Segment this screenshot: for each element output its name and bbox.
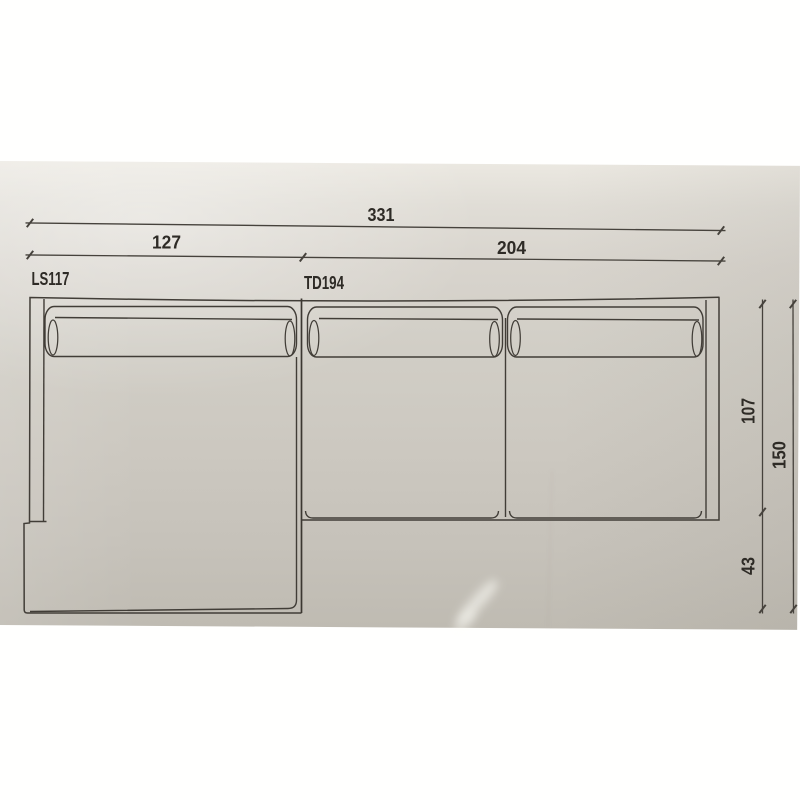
svg-text:43: 43 xyxy=(739,557,759,575)
svg-text:LS117: LS117 xyxy=(32,269,70,289)
svg-text:204: 204 xyxy=(497,238,526,258)
svg-text:127: 127 xyxy=(152,233,181,253)
svg-text:TD194: TD194 xyxy=(304,273,344,293)
svg-text:150: 150 xyxy=(770,441,790,469)
svg-text:107: 107 xyxy=(739,398,759,424)
svg-text:331: 331 xyxy=(368,205,395,225)
